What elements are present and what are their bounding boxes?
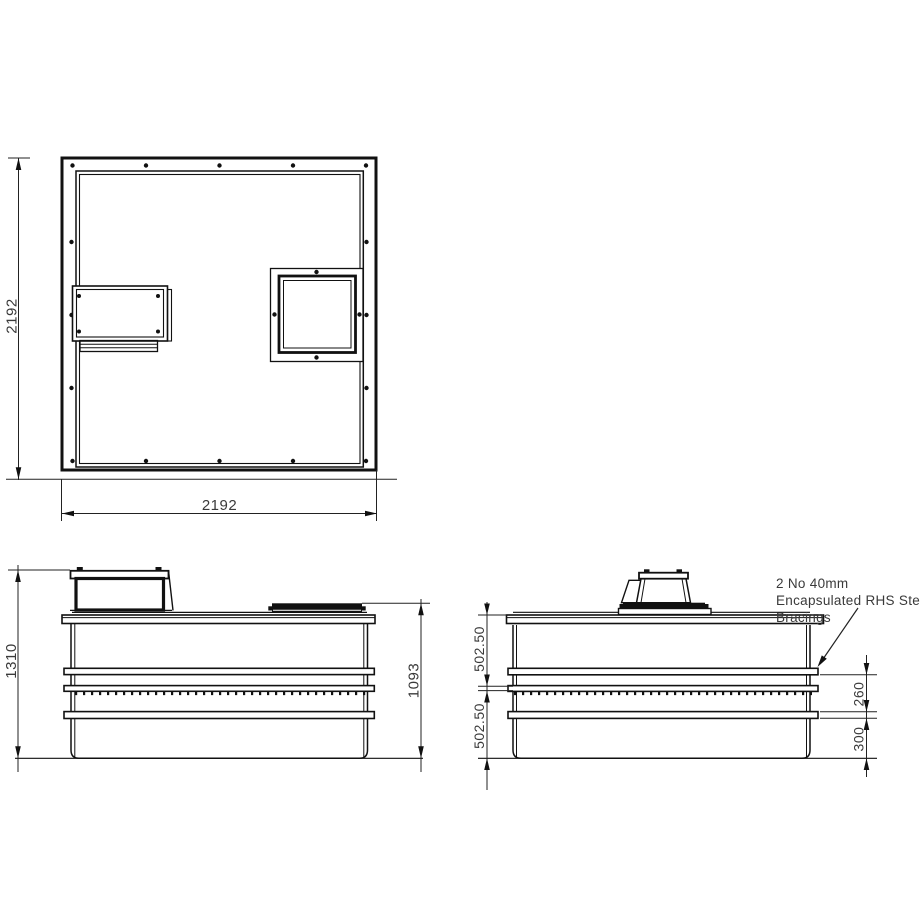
bolt-dot xyxy=(144,459,148,463)
bolt-dot xyxy=(314,270,318,274)
bolt-dot xyxy=(156,294,160,298)
plan-left-hatch xyxy=(73,286,172,352)
bolt-dot xyxy=(70,459,74,463)
bolt-dot xyxy=(70,163,74,167)
bracing-band-3 xyxy=(508,712,818,719)
bracing-band-2 xyxy=(508,686,818,692)
plan-right-opening xyxy=(271,269,364,362)
arrowhead-up xyxy=(15,570,21,582)
turret-rim xyxy=(639,573,688,579)
bolt-dot xyxy=(364,240,368,244)
turret-base-plate xyxy=(619,609,712,615)
side-elevation: 502.50 502.50 260 300 2 No 40mm Encapsul… xyxy=(471,569,920,790)
turret-tab xyxy=(620,604,624,609)
bolt-dot xyxy=(69,386,73,390)
hatch-bolt xyxy=(644,569,650,573)
bolt-dot xyxy=(217,459,221,463)
arrowhead-right xyxy=(365,511,377,517)
arrowhead-down xyxy=(484,604,490,616)
arrowhead-up xyxy=(418,603,424,615)
side-lower-section-label: 502.50 xyxy=(471,703,487,749)
bolt-dot xyxy=(291,459,295,463)
leader-arrowhead xyxy=(818,655,827,667)
front-body-height-label: 1093 xyxy=(406,663,423,698)
bracing-band-1 xyxy=(64,668,374,674)
bolt-dot xyxy=(314,355,318,359)
low-hatch-tab xyxy=(268,606,272,610)
arrowhead-up xyxy=(484,758,490,770)
bolt-dot xyxy=(364,459,368,463)
hatch-side-edge xyxy=(169,571,174,611)
arrowhead-down xyxy=(16,467,22,479)
turret-hatch xyxy=(619,569,712,614)
arrowhead-down xyxy=(15,746,21,758)
plan-view: 2192 2192 xyxy=(4,158,398,521)
low-hatch xyxy=(268,603,365,613)
bolt-dot xyxy=(144,163,148,167)
lid-flange xyxy=(62,615,375,624)
front-overall-height-label: 1310 xyxy=(3,643,20,678)
bolt-dot xyxy=(357,312,361,316)
raised-hatch xyxy=(70,567,173,610)
arrowhead-up xyxy=(16,158,22,170)
bolt-dot xyxy=(69,240,73,244)
plan-height-label: 2192 xyxy=(4,298,21,333)
bolt-dot xyxy=(217,163,221,167)
hatch-frame xyxy=(76,579,164,611)
arrowhead-down xyxy=(864,663,870,675)
arrowhead-left xyxy=(62,511,74,517)
annotation-line-1: 2 No 40mm xyxy=(776,576,848,591)
turret-tab xyxy=(705,604,709,609)
bracing-band-3 xyxy=(64,712,374,719)
plan-width-label: 2192 xyxy=(202,497,237,514)
bolt-dot xyxy=(77,330,81,334)
turret-base-bar xyxy=(623,603,705,609)
annotation-line-3: Bracings xyxy=(776,610,831,625)
side-bracing-gap-label: 260 xyxy=(851,682,867,707)
bolt-dot xyxy=(291,163,295,167)
side-base-height-label: 300 xyxy=(851,727,867,752)
bolt-dot xyxy=(364,386,368,390)
low-hatch-tab xyxy=(362,606,366,610)
drawing-sheet: 2192 2192 xyxy=(0,0,920,920)
arrowhead-up xyxy=(864,758,870,770)
technical-drawing-canvas: 2192 2192 xyxy=(0,0,920,920)
arrowhead-down xyxy=(418,746,424,758)
annotation-line-2: Encapsulated RHS Steel xyxy=(776,593,920,608)
low-hatch-body xyxy=(272,603,362,613)
bolt-dot xyxy=(77,294,81,298)
arrowhead-down xyxy=(484,675,490,687)
hatch-bolt xyxy=(677,569,683,573)
bracing-band-1 xyxy=(508,668,818,675)
side-upper-section-label: 502.50 xyxy=(471,626,487,672)
plan-left-hatch-outer xyxy=(73,286,168,341)
arrowhead-up xyxy=(484,691,490,703)
bolt-dot xyxy=(272,312,276,316)
bolt-dot xyxy=(156,330,160,334)
bracing-band-2 xyxy=(64,686,374,692)
bolt-dot xyxy=(364,313,368,317)
front-elevation: 1310 1093 xyxy=(3,565,430,772)
bolt-dot xyxy=(364,163,368,167)
